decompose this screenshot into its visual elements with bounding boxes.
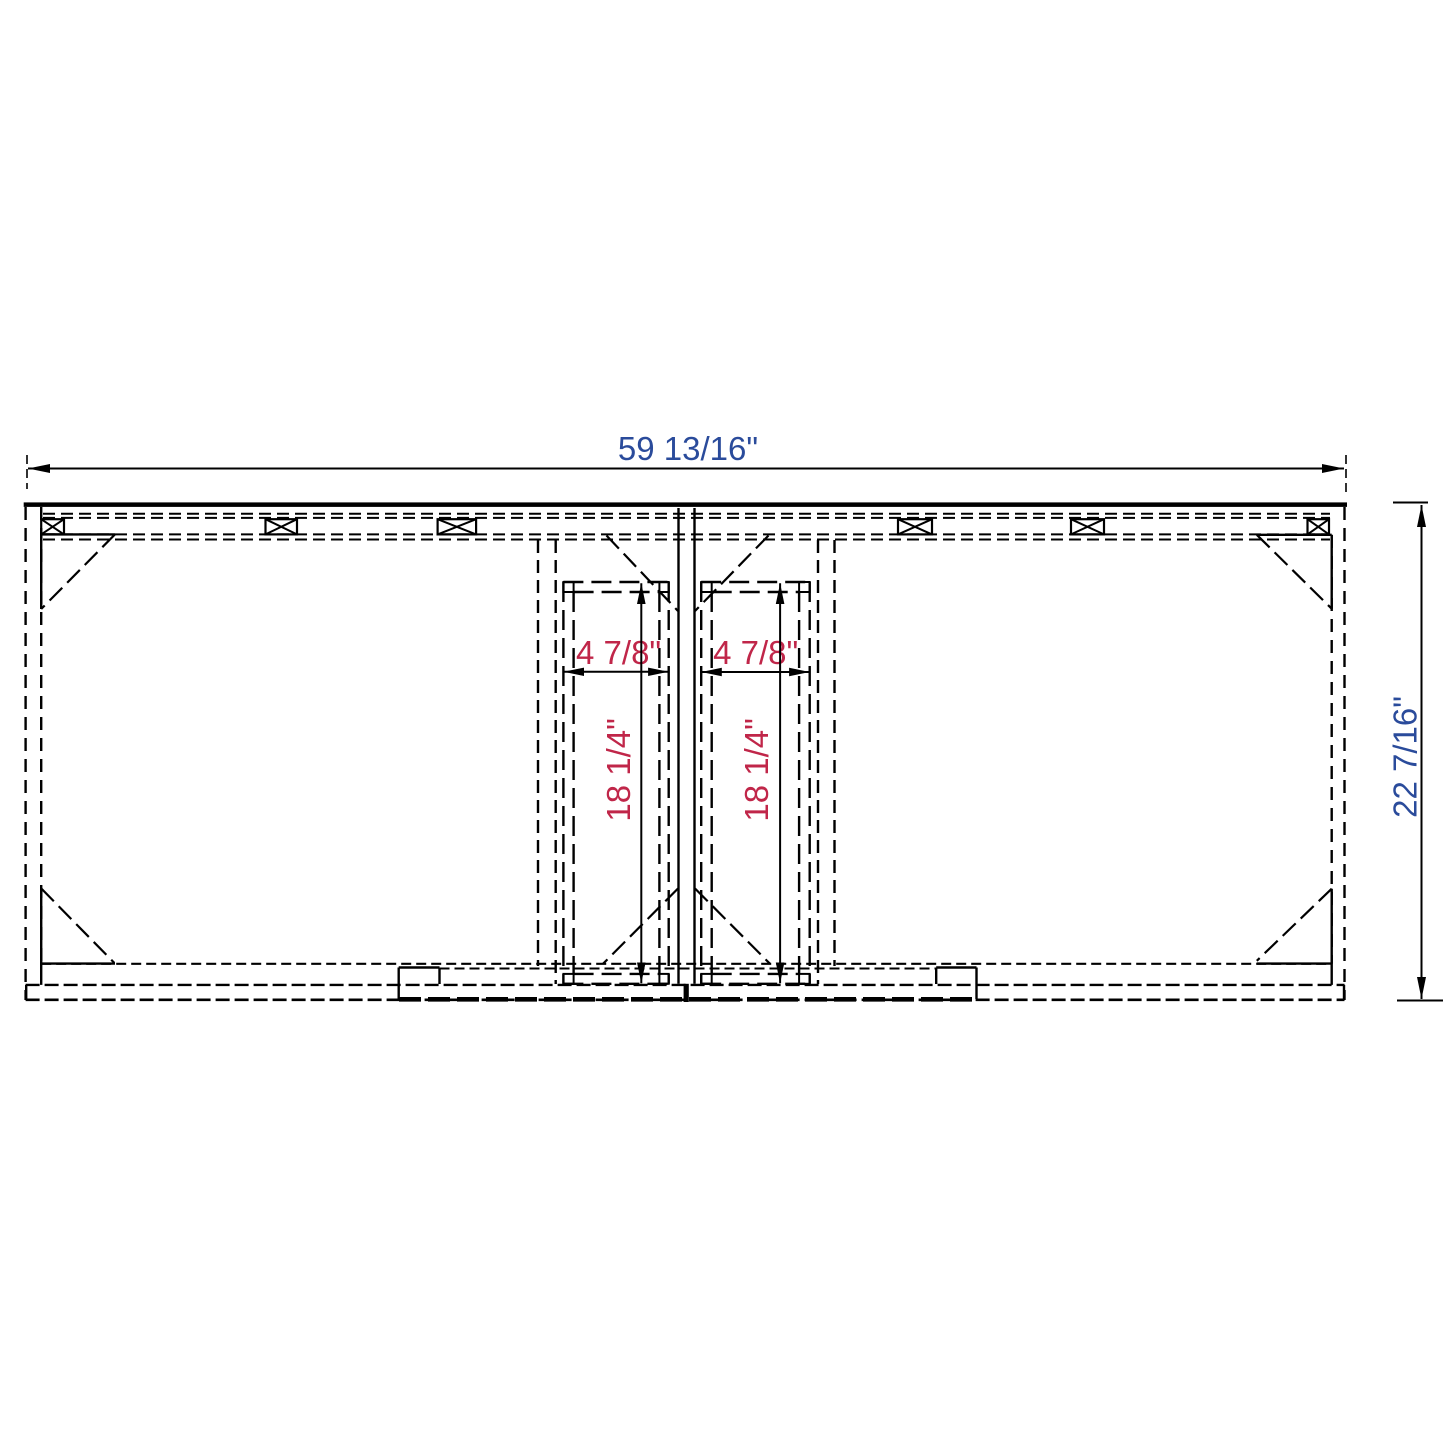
svg-text:4 7/8": 4 7/8" bbox=[713, 634, 798, 671]
svg-text:59 13/16": 59 13/16" bbox=[618, 430, 758, 467]
svg-text:18 1/4": 18 1/4" bbox=[600, 718, 637, 821]
svg-text:22 7/16": 22 7/16" bbox=[1387, 696, 1424, 818]
svg-text:4 7/8": 4 7/8" bbox=[576, 634, 661, 671]
svg-text:18 1/4": 18 1/4" bbox=[738, 718, 775, 821]
